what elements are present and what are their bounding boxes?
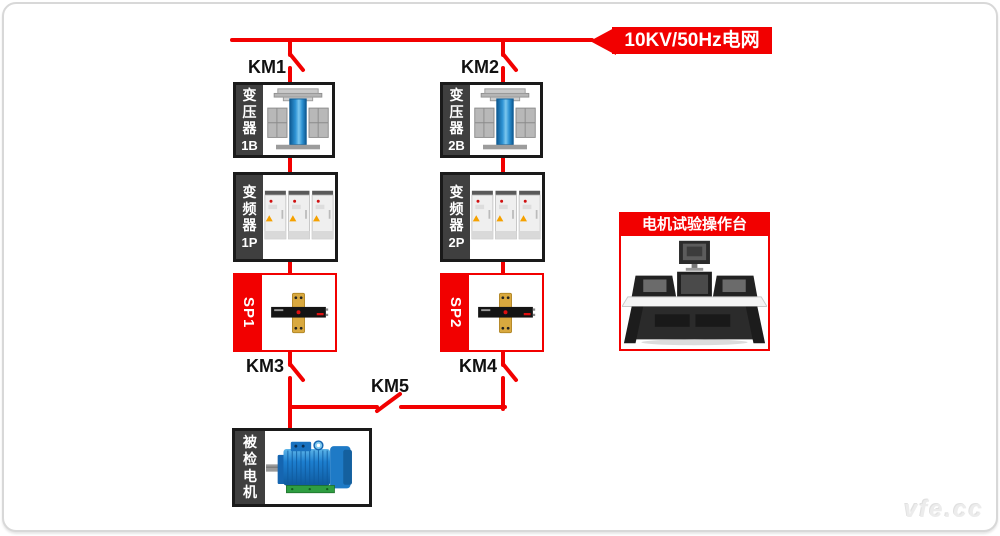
inverter-2p-band: 变频器 2P [443,175,470,259]
sensor-sp1-band: SP1 [235,275,262,350]
km4-label: KM4 [453,356,497,377]
km4-switch [503,349,516,409]
km1-label: KM1 [242,57,286,78]
motor-label: 被检电机 [242,434,258,500]
km2-switch [503,40,516,84]
inverter-1p-band: 变频器 1P [236,175,263,259]
sensor-sp2-code: SP2 [447,297,464,328]
console-box: 电机试验操作台 [619,212,770,351]
console-title: 电机试验操作台 [621,214,768,236]
inverter-2p-code: 2P [449,235,465,250]
power-sensor-icon [262,275,335,350]
km5-label: KM5 [371,376,415,397]
inverter-1p-code: 1P [242,235,258,250]
transformer-1b-code: 1B [241,138,258,153]
km3-switch [290,349,303,430]
transformer-1b-name: 变压器 [242,87,258,137]
power-sensor-icon [469,275,542,350]
transformer-icon [263,85,332,155]
sensor-sp2-box: SP2 [440,273,544,352]
motor-band: 被检电机 [235,431,265,504]
transformer-1b-band: 变压器 1B [236,85,263,155]
inverter-2p-name: 变频器 [449,184,465,234]
diagram-stage: 10KV/50Hz电网 KM1 KM2 KM3 KM4 KM5 变压器 1B [0,0,1000,536]
inverter-cabinets-icon [263,175,335,259]
km1-switch [290,40,303,84]
sensor-sp2-band: SP2 [442,275,469,350]
transformer-2b-name: 变压器 [449,87,465,137]
inverter-2p-box: 变频器 2P [440,172,545,262]
transformer-1b-box: 变压器 1B [233,82,335,158]
sensor-sp1-code: SP1 [240,297,257,328]
console-desk-icon [621,236,768,349]
transformer-2b-box: 变压器 2B [440,82,543,158]
grid-banner: 10KV/50Hz电网 [612,27,772,54]
sensor-sp1-box: SP1 [233,273,337,352]
inverter-1p-name: 变频器 [242,184,258,234]
transformer-2b-band: 变压器 2B [443,85,470,155]
motor-under-test-box: 被检电机 [232,428,372,507]
km2-label: KM2 [455,57,499,78]
watermark: vfe.cc [904,496,984,524]
wiring-lines [0,0,1000,536]
km3-label: KM3 [240,356,284,377]
inverter-1p-box: 变频器 1P [233,172,338,262]
transformer-2b-code: 2B [448,138,465,153]
motor-icon [265,431,369,504]
inverter-cabinets-icon [470,175,542,259]
transformer-icon [470,85,540,155]
